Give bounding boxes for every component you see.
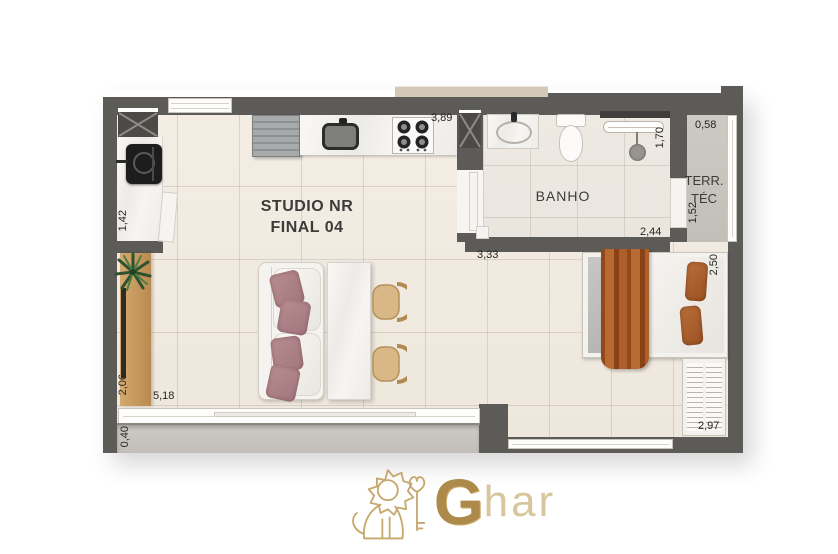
floor-plan-canvas: 3,89 1,42 0,58 1,70 2,44 1,52 3,33 2,50 … [0,0,838,554]
unit-title: STUDIO NR FINAL 04 [227,196,387,238]
bed-blanket [601,249,649,369]
kitchen-sink [322,123,359,150]
chair-icon [371,342,407,386]
bed-pillow [679,305,703,346]
balcony-sliding-door [118,408,480,424]
unit-title-line1: STUDIO NR [227,196,387,217]
dim-living-width: 3,33 [477,249,498,261]
duct-shaft-kitchen [459,110,481,148]
stove [392,117,434,154]
towel-bar-line [608,127,659,128]
dining-table [327,262,371,400]
tech-terrace-label-line2: TÉC [682,190,726,208]
brand-logo: G har [318,456,578,548]
faucet-icon [339,118,347,124]
bathroom-vanity [487,114,539,149]
dim-bedroom-wall: 2,97 [698,420,719,432]
dim-balcony-depth: 0,40 [119,426,131,447]
kitchen-tall-cabinet [252,115,300,157]
sofa-pillow [276,298,311,337]
basin-icon [496,121,532,144]
tech-terrace-label: TERR. TÉC [682,172,726,208]
brand-name-rest: har [484,477,557,527]
sideboard-groove [121,288,126,378]
wall-right-lower [728,242,743,453]
dining-chair [371,280,407,324]
washer-hose-icon [116,160,128,163]
tech-terrace-window [727,115,737,242]
wall-end-cap [476,226,489,239]
dim-bathroom-width: 2,44 [640,226,661,238]
chair-icon [371,280,407,324]
plant [110,248,156,296]
duct-shaft-laundry [118,108,158,137]
bathroom-label: BANHO [528,188,598,204]
washing-machine [126,144,162,184]
lion-key-icon [340,461,432,543]
shower-head-icon [629,144,646,161]
dim-shower-depth: 1,70 [654,127,666,148]
toilet [556,114,586,163]
kitchen-window [168,98,232,113]
wall-balcony-step [479,404,508,453]
washer-door-line [152,147,154,181]
dim-laundry-depth: 1,42 [117,210,129,231]
dining-chair [371,342,407,386]
faucet-icon [511,112,517,122]
dim-tech-terrace-width: 0,58 [695,119,716,131]
bathroom-door-leaf [469,172,478,231]
toilet-bowl [559,125,583,162]
balcony-floor [117,424,480,453]
wall-top-corner-step [721,86,743,98]
duct-shaft-hatch-icon [459,110,481,148]
brand-initial: G [434,475,482,529]
dim-sideboard-length: 2,06 [117,374,129,395]
dim-bed-area-depth: 2,50 [708,254,720,275]
unit-title-line2: FINAL 04 [227,217,387,238]
balcony-sill [117,423,480,425]
wall-right-outer [737,115,743,242]
tech-terrace-label-line1: TERR. [682,172,726,190]
burners-icon [393,118,433,153]
corridor-strip [395,86,548,97]
dim-balcony-width: 5,18 [153,390,174,402]
shower-glass-partition [600,111,670,118]
dim-kitchen-counter: 3,89 [431,112,452,124]
bedroom-window [508,439,673,449]
bed-pillow [685,261,709,301]
plant-icon [110,248,156,296]
duct-shaft-hatch-icon [118,108,158,137]
